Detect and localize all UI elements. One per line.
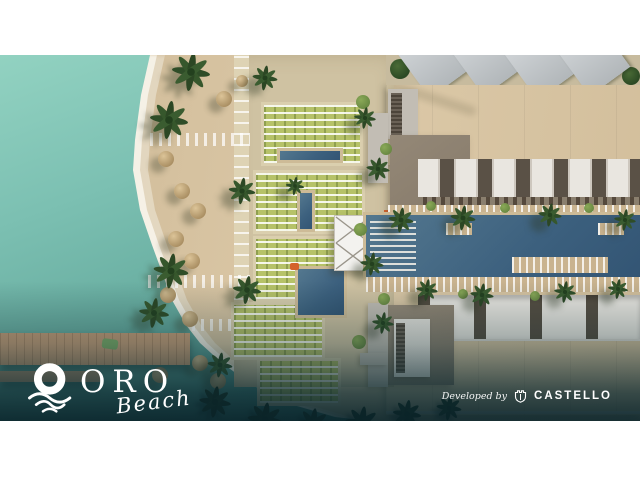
pool-island-deck (512, 257, 608, 273)
castello-castle-shield-icon (514, 389, 527, 403)
beach-umbrella (168, 231, 184, 247)
north-balcony-bays (418, 159, 640, 197)
beach-umbrella (190, 203, 206, 219)
hedge-bush (354, 223, 367, 236)
sun-over-waves-icon (26, 361, 80, 417)
developer-credit: Developed by CASTELLO (442, 389, 612, 403)
palm-tree (226, 175, 258, 207)
beach-umbrella (174, 183, 190, 199)
palm-tree (358, 250, 386, 278)
beach-umbrella (158, 151, 174, 167)
hedge-bush (584, 203, 594, 213)
palm-tree (364, 155, 392, 183)
palm-tree (146, 97, 192, 143)
palm-tree (612, 207, 638, 233)
palm-tree (284, 175, 306, 197)
rooftop-louver-vent (391, 93, 402, 135)
logo-wordmark: ORO Beach (80, 361, 192, 414)
hedge-bush (380, 143, 392, 155)
hedge-bush (500, 203, 510, 213)
palm-tree (250, 63, 280, 93)
developed-by-label: Developed by (442, 391, 507, 402)
letterboxed-render-frame: ORO Beach Developed by CASTELLO (0, 0, 640, 480)
plunge-pool (300, 193, 312, 229)
beach-umbrella (216, 91, 232, 107)
beach-umbrella (236, 75, 248, 87)
palm-tree (352, 105, 378, 131)
kids-play-mat (290, 263, 299, 270)
castello-label: CASTELLO (534, 390, 612, 402)
oro-beach-logo: ORO Beach (26, 361, 192, 417)
plunge-pool (280, 151, 340, 160)
aerial-resort-render: ORO Beach Developed by CASTELLO (0, 55, 640, 421)
palm-tree (448, 203, 478, 233)
palm-tree (386, 205, 416, 235)
palm-tree (536, 201, 564, 229)
hedge-bush (426, 201, 436, 211)
neighboring-rooftops (386, 55, 640, 85)
palm-tree (168, 55, 214, 95)
